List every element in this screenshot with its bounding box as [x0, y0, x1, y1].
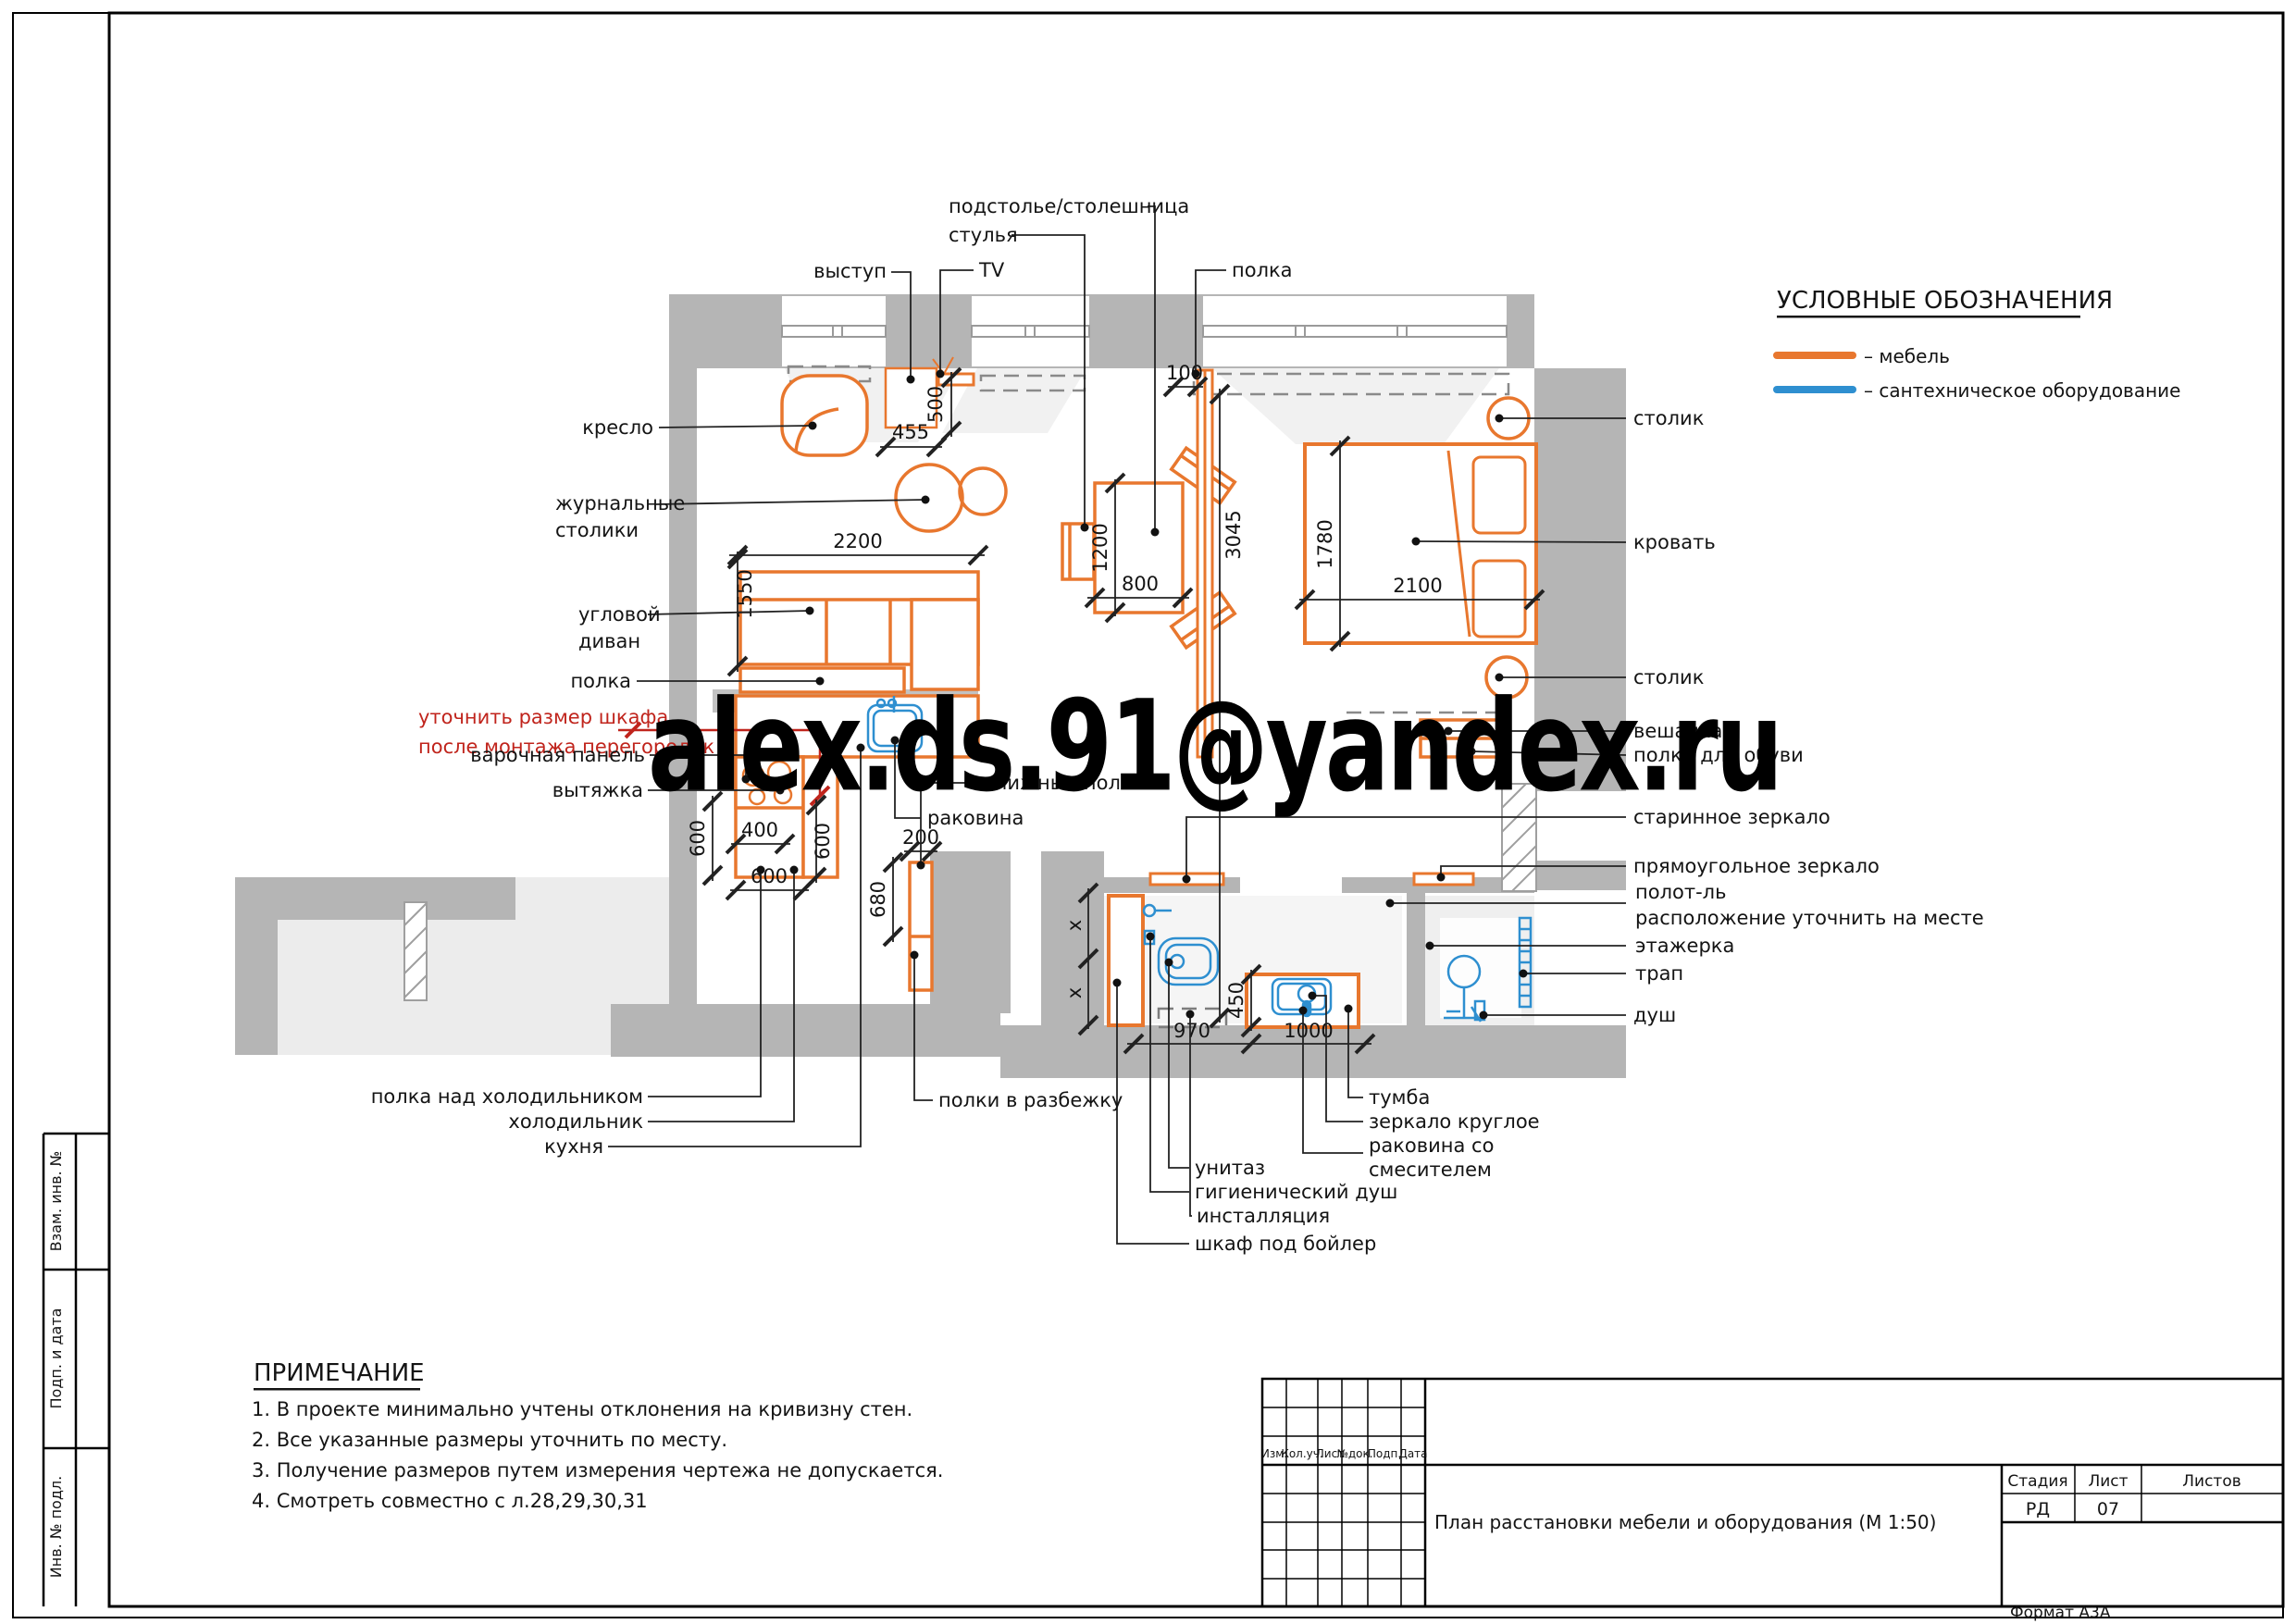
- legend-furniture-label: – мебель: [1864, 345, 1950, 367]
- label-krovat: кровать: [1633, 531, 1716, 553]
- sheet-title: План расстановки мебели и оборудования (…: [1434, 1511, 1936, 1533]
- dim-1780: 1780: [1314, 519, 1336, 568]
- dim-2100: 2100: [1393, 575, 1442, 597]
- dim-1200: 1200: [1089, 523, 1111, 572]
- sidebar-cell-inv: Инв. № подл.: [47, 1476, 65, 1578]
- label-vytyazhka: вытяжка: [552, 779, 643, 801]
- label-polka-holod: полка над холодильником: [371, 1085, 643, 1108]
- tb-sheets-label: Листов: [2182, 1472, 2241, 1491]
- label-etazherka: этажерка: [1635, 935, 1734, 957]
- sidebar-cell-vzam: Взам. инв. №: [47, 1151, 65, 1252]
- label-podstolye: подстолье/столешница: [949, 195, 1189, 217]
- dim-455: 455: [892, 421, 929, 443]
- label-tumba: тумба: [1369, 1086, 1430, 1109]
- tb-sheet-label: Лист: [2088, 1472, 2128, 1491]
- watermark-text: alex.ds.91@yandex.ru: [648, 674, 1781, 820]
- label-uglovoy-2: диван: [578, 630, 640, 652]
- note-item-4: 4. Смотреть совместно с л.28,29,30,31: [252, 1490, 648, 1512]
- note-item-3: 3. Получение размеров путем измерения че…: [252, 1459, 943, 1481]
- label-polotl-1: полот-ль: [1635, 881, 1726, 903]
- label-polki-razbezhku: полки в разбежку: [938, 1089, 1123, 1111]
- boiler-cabinet: [1109, 896, 1143, 1025]
- label-gig-dush: гигиенический душ: [1195, 1181, 1397, 1203]
- dim-600-left: 600: [687, 820, 709, 857]
- dim-970: 970: [1173, 1020, 1210, 1042]
- title-block: [1262, 1379, 2283, 1606]
- label-installyatsiya: инсталляция: [1197, 1205, 1330, 1227]
- label-kreslo: кресло: [582, 416, 653, 439]
- coffee-table-2: [960, 468, 1006, 514]
- label-dush: душ: [1633, 1004, 1676, 1026]
- label-rakovina-smesitel-2: смесителем: [1369, 1159, 1492, 1181]
- label-kuhnya: кухня: [544, 1135, 603, 1158]
- dim-3045: 3045: [1222, 510, 1245, 559]
- sidebar-cell-podp: Подп. и дата: [47, 1308, 65, 1409]
- label-vystup: выступ: [813, 260, 887, 282]
- dim-x-lower: x: [1063, 987, 1086, 998]
- tb-col-podp: Подп.: [1368, 1447, 1401, 1460]
- label-uglovoy-1: угловой: [578, 603, 661, 626]
- label-rakovina-smesitel-1: раковина со: [1369, 1134, 1494, 1157]
- label-zerkalo-krugloe: зеркало круглое: [1369, 1110, 1540, 1133]
- label-tv: TV: [978, 259, 1005, 281]
- label-pryamougolnoe: прямоугольное зеркало: [1633, 855, 1880, 877]
- dim-2200: 2200: [833, 530, 882, 552]
- dim-800: 800: [1122, 573, 1159, 595]
- label-holodilnik: холодильник: [508, 1110, 643, 1133]
- book-shelves-unit: [910, 862, 932, 990]
- dim-680: 680: [867, 881, 889, 918]
- notes-block: ПРИМЕЧАНИЕ 1. В проекте минимально учтен…: [252, 1359, 943, 1512]
- note-item-2: 2. Все указанные размеры уточнить по мес…: [252, 1429, 727, 1451]
- tb-stage-label: Стадия: [2007, 1472, 2067, 1491]
- label-polka-top: полка: [1232, 259, 1293, 281]
- sidebar-stamp: Взам. инв. № Подп. и дата Инв. № подл.: [47, 1151, 65, 1579]
- label-zhurnalnye-1: журнальные: [555, 492, 685, 514]
- dim-600-right: 600: [812, 823, 834, 860]
- tb-stage-value: РД: [2026, 1499, 2050, 1519]
- label-polka-sofa: полка: [570, 670, 631, 692]
- format-note: Формат А3А: [2010, 1604, 2111, 1622]
- armchair: [782, 376, 867, 455]
- dim-600-bottom: 600: [751, 865, 788, 887]
- dim-450: 450: [1225, 982, 1247, 1019]
- dim-x-upper: x: [1063, 920, 1086, 931]
- label-stulya: стулья: [949, 224, 1018, 246]
- legend: УСЛОВНЫЕ ОБОЗНАЧЕНИЯ – мебель – сантехни…: [1777, 287, 2180, 402]
- legend-title: УСЛОВНЫЕ ОБОЗНАЧЕНИЯ: [1777, 287, 2113, 315]
- tb-col-data: Дата: [1398, 1447, 1427, 1460]
- label-polotl-2: расположение уточнить на месте: [1635, 907, 1984, 929]
- label-unitaz: унитаз: [1195, 1157, 1265, 1179]
- legend-sanitary-label: – сантехническое оборудование: [1864, 379, 2180, 402]
- title-block-text: Изм. Кол.уч. Лист №док. Подп. Дата План …: [1261, 1447, 2241, 1622]
- label-red-1: уточнить размер шкафа: [418, 706, 668, 728]
- label-shkaf-boyler: шкаф под бойлер: [1195, 1233, 1376, 1255]
- label-stolik-top: столик: [1633, 407, 1704, 429]
- dim-400: 400: [741, 819, 778, 841]
- label-varochnaya: варочная панель: [470, 744, 645, 766]
- note-item-1: 1. В проекте минимально учтены отклонени…: [252, 1398, 912, 1420]
- label-zhurnalnye-2: столики: [555, 519, 639, 541]
- label-trap: трап: [1635, 962, 1683, 985]
- dim-500: 500: [925, 386, 947, 423]
- notes-title: ПРИМЕЧАНИЕ: [254, 1359, 425, 1387]
- tb-sheet-value: 07: [2097, 1499, 2119, 1519]
